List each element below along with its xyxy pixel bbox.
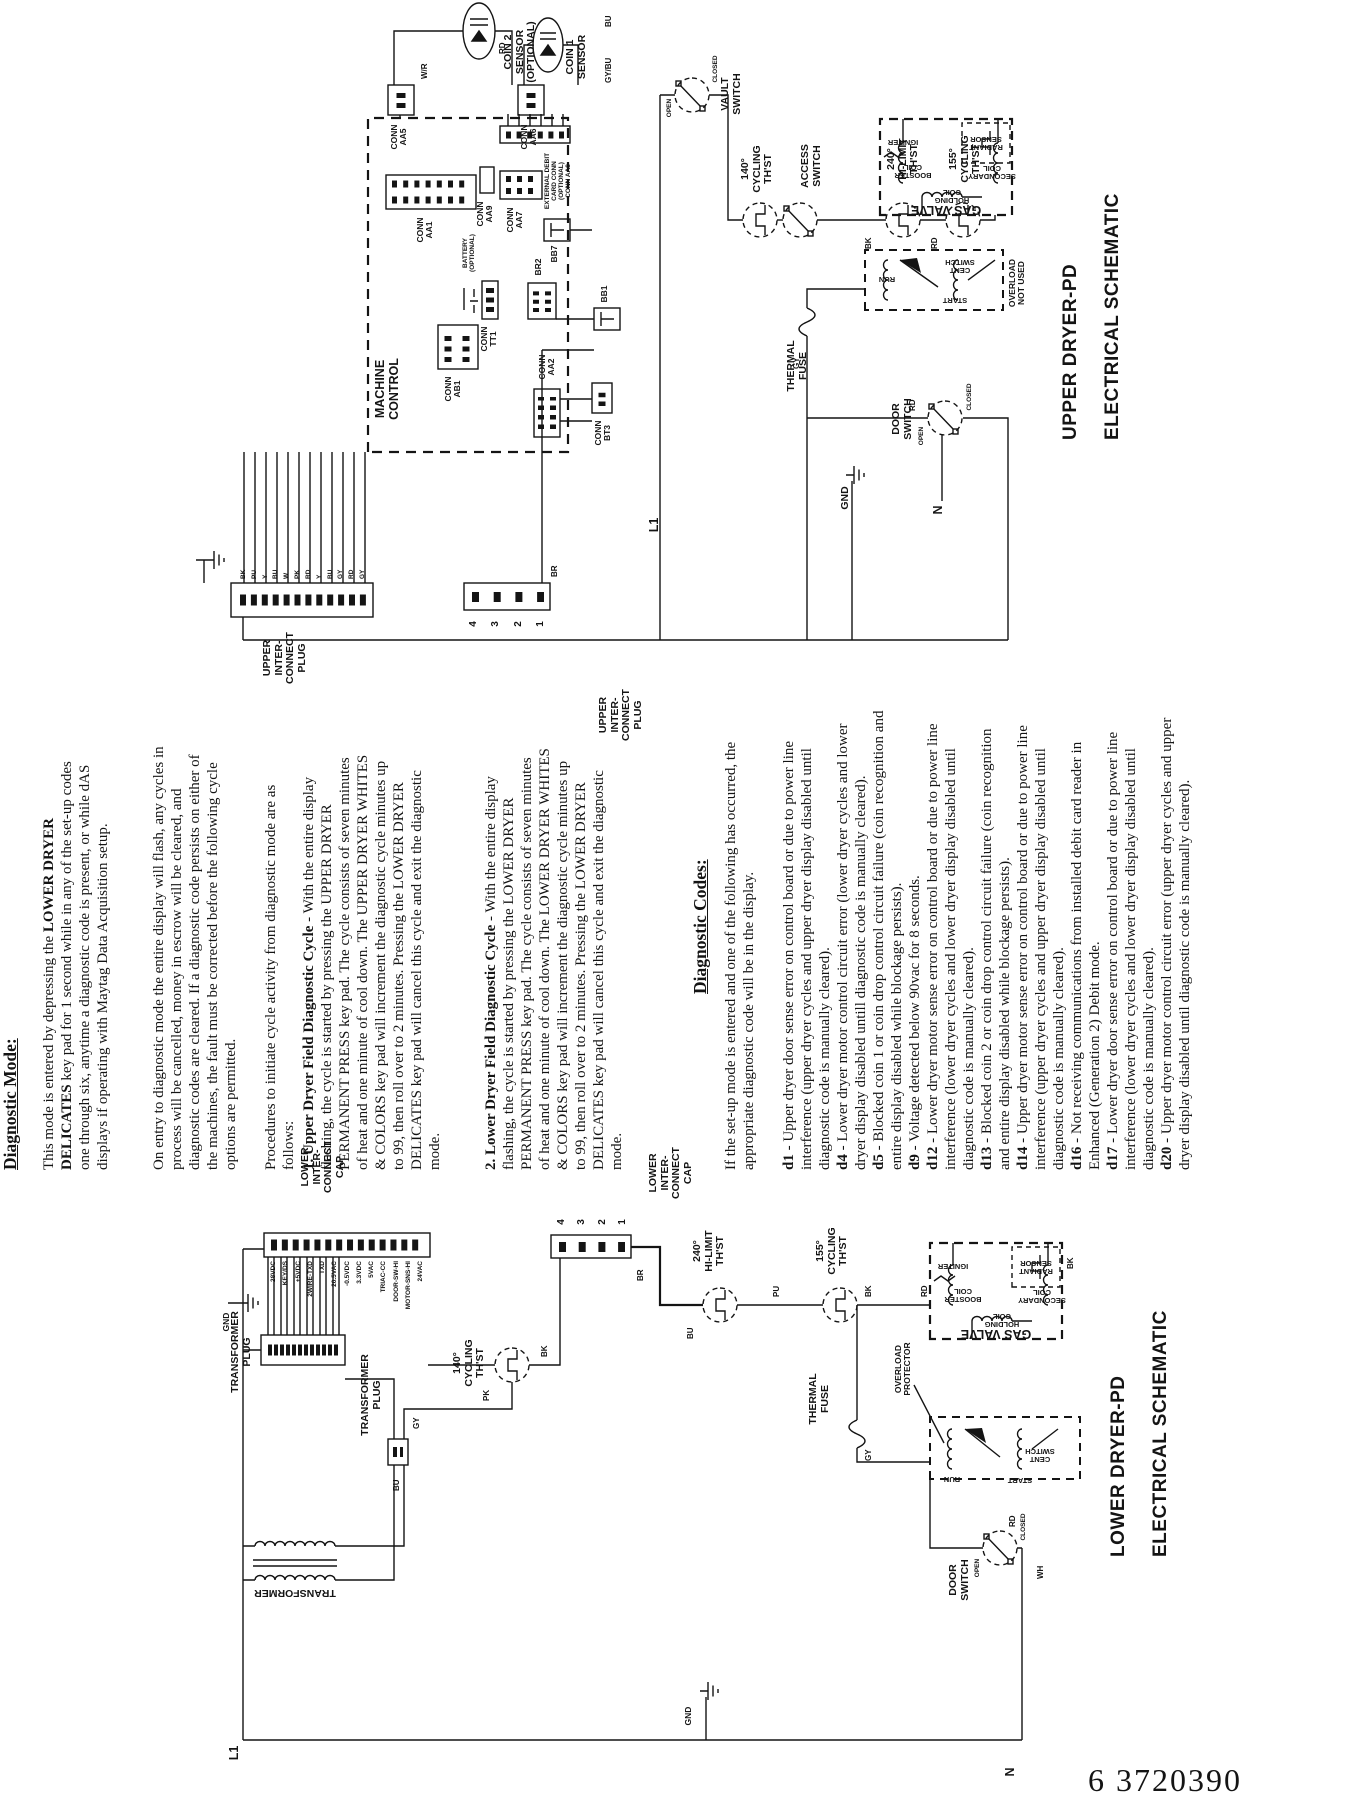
list-item: 3 (490, 621, 501, 627)
access-switch-label: ACCESS SWITCH (800, 135, 823, 197)
list-item: PK (294, 570, 301, 579)
open-label: OPEN (666, 93, 673, 123)
conn-aa9-label: CONN AA9 (476, 195, 495, 233)
wire-label: W/R (420, 63, 429, 79)
upper-interconnect-plug-label: UPPER INTER- CONNECT PLUG (262, 613, 308, 703)
list-item: 5VAC (368, 1261, 375, 1278)
list-item: 2WIRE-TXD (307, 1261, 314, 1297)
battery-label: BATTERY (OPTIONAL) (462, 225, 476, 281)
vault-switch-symbol (675, 78, 709, 112)
step-lead: 2. Lower Dryer Field Diagnostic Cycle (483, 925, 499, 1170)
list-item: 20.5VAC (331, 1261, 338, 1287)
secondary-coil-label: SECONDARY COIL (1013, 1288, 1071, 1304)
cycling-140-thermostat-symbol (743, 203, 777, 237)
n-label: N (932, 501, 946, 519)
wire-label: GY (412, 1417, 421, 1429)
step-text: - With the entire display flashing, the … (483, 748, 625, 1170)
transformer-symbol (255, 1576, 335, 1581)
lower-interconnect-cap-label: LOWER INTER- CONNECT CAP (648, 1135, 694, 1211)
step-1-paragraph: 1. Upper Dryer Field Diagnostic Cycle - … (300, 746, 444, 1170)
l1-label: L1 (228, 1741, 242, 1765)
open-label: OPEN (974, 1553, 981, 1583)
list-item: 1 (535, 621, 546, 627)
holding-coil-label: HOLDING COIL (977, 1312, 1027, 1328)
bb1-label: BB1 (600, 283, 609, 305)
wire-label: BK (540, 1345, 549, 1357)
code-id: d12 (925, 1147, 941, 1170)
closed-label: CLOSED (966, 377, 973, 417)
list-item: GY (337, 570, 344, 579)
title-line1: UPPER DRYER-PD (1061, 160, 1082, 440)
list-item: Y (262, 575, 269, 579)
list-item: GY (359, 570, 366, 579)
conn-bt3-label: CONN BT3 (594, 415, 613, 451)
list-item: BU (272, 570, 279, 579)
diagnostic-codes-intro: If the set-up mode is entered and one of… (722, 718, 758, 1170)
code-text: - Blocked coin 1 or coin drop control ci… (871, 711, 905, 1170)
transformer-plug-label: TRANSFORMER PLUG (360, 1350, 383, 1440)
wire-label: RD (930, 237, 939, 249)
plug4-pin-numbers: 4321 (468, 614, 546, 634)
closed-label: CLOSED (712, 49, 719, 89)
list-item: RD (348, 570, 355, 579)
coin2-sensor-label: COIN 2 SENSOR (OPTIONAL) (503, 9, 538, 95)
list-item: KEY/DS (282, 1261, 289, 1285)
conn-ab1-label: CONN AB1 (444, 371, 463, 407)
list-item: 2 (513, 621, 524, 627)
wire-label: GY/BU (604, 58, 613, 83)
list-item: BK (240, 570, 247, 579)
list-item: DOOR-SW-HI (393, 1261, 400, 1302)
code-entry: d9 - Voltage detected below 90vac for 8 … (906, 708, 924, 1170)
wire-label: PK (482, 1390, 491, 1401)
n-label: N (1004, 1763, 1018, 1781)
thermal-fuse-label: THERMAL FUSE (808, 1371, 831, 1427)
upper-schematic-title: UPPER DRYER-PD ELECTRICAL SCHEMATIC (1040, 160, 1144, 440)
code-id: d16 (1069, 1147, 1085, 1170)
gnd-label: GND (222, 1305, 231, 1339)
code-entry: d4 - Lower dryer motor control circuit e… (834, 708, 870, 1170)
scanned-tech-sheet: UPPER INTER- CONNECT PLUG UPPER INTER- C… (0, 0, 1347, 1809)
cycling-140-label: 140° CYCLING TH'ST (452, 1335, 487, 1391)
door-switch-label: DOOR SWITCH (891, 386, 914, 452)
wire-label: BR (636, 1269, 645, 1281)
list-item: MOTOR-SNS-HI (405, 1261, 412, 1309)
code-id: d5 (871, 1154, 887, 1170)
page-number: 6 3720390 (1088, 1762, 1242, 1799)
ground-symbol (206, 551, 224, 569)
procedures-paragraph: Procedures to initiate cycle activity fr… (262, 770, 298, 1170)
holding-coil-label: HOLDING COIL (927, 188, 977, 204)
code-entry: d5 - Blocked coin 1 or coin drop control… (870, 708, 906, 1170)
radiant-sensor-label: RADIANT SENSOR (961, 135, 1011, 151)
list-item: 24VAC (417, 1261, 424, 1281)
code-id: d20 (1159, 1147, 1175, 1170)
code-entry: d13 - Blocked coin 2 or coin drop contro… (978, 708, 1014, 1170)
conn-aa2-label: CONN AA2 (538, 349, 557, 385)
rotated-page: UPPER INTER- CONNECT PLUG UPPER INTER- C… (0, 0, 1347, 1809)
closed-label: CLOSED (1020, 1507, 1027, 1547)
list-item: 3.3VDC (356, 1261, 363, 1284)
igniter-symbol (934, 1276, 955, 1281)
step-lead: 1. Upper Dryer Field Diagnostic Cycle (301, 926, 317, 1170)
code-entry: d17 - Lower dryer door sense error on co… (1104, 708, 1158, 1170)
list-item: 2 (597, 1219, 608, 1225)
wire-label: RD (498, 42, 507, 54)
text-run: This mode is entered by depressing the (41, 932, 57, 1170)
conn-aa8-label: EXTERNAL DEBIT CARD CONN (OPTIONAL) CONN… (544, 145, 573, 217)
title-line2: ELECTRICAL SCHEMATIC (1151, 1277, 1172, 1557)
code-text: - Lower dryer door sense error on contro… (1105, 732, 1157, 1170)
code-entry: d14 - Upper dryer motor sense error on c… (1014, 708, 1068, 1170)
code-text: - Voltage detected below 90vac for 8 sec… (907, 875, 923, 1154)
machine-control-label: MACHINE CONTROL (374, 346, 402, 432)
transformer-plug-label: TRANSFORMER PLUG (230, 1304, 253, 1400)
wire-label: GY (792, 357, 801, 369)
cycling-140-label: 140° CYCLING TH'ST (740, 141, 775, 197)
code-id: d9 (907, 1154, 923, 1170)
code-text: - Blocked coin 2 or coin drop control ci… (979, 728, 1013, 1170)
wire-label: BU (686, 1327, 695, 1339)
booster-coil-label: BOOSTER COIL (938, 1287, 988, 1303)
door-switch-symbol (928, 401, 962, 435)
door-switch-symbol (983, 1531, 1017, 1565)
cycling-155-label: 155° CYCLING TH'ST (815, 1221, 850, 1281)
wire-label: BK (864, 1285, 873, 1297)
hilimit-240-thermostat-symbol (703, 1288, 737, 1322)
secondary-coil-label: SECONDARY COIL (963, 164, 1021, 180)
igniter-label: IGNITER (881, 136, 925, 146)
run-winding-label: RUN (937, 1473, 967, 1483)
wire-label: PU (772, 1286, 781, 1297)
code-text: - Not receiving communications from inst… (1069, 742, 1103, 1170)
wire-label: GY (864, 1449, 873, 1461)
wire-label: BU (392, 1479, 401, 1491)
igniter-label: IGNITER (931, 1260, 975, 1270)
conn-aa6-label: CONN AA6 (520, 117, 539, 157)
code-entry: d1 - Upper dryer door sense error on con… (780, 708, 834, 1170)
list-item: 1 (617, 1219, 628, 1225)
code-id: d14 (1015, 1147, 1031, 1170)
list-item: RD (305, 570, 312, 579)
conn-aa7-label: CONN AA7 (506, 201, 525, 239)
cap4-pin-numbers: 4321 (556, 1213, 628, 1231)
start-winding-label: START (1002, 1474, 1038, 1484)
plug12-wire-tags: BKPUYBUWPKRDYBUGYRDGY (240, 551, 366, 579)
ground-symbol (700, 1682, 718, 1700)
wire-label: RD (1008, 1515, 1017, 1527)
wire-label: RD (920, 1285, 929, 1297)
code-id: d17 (1105, 1147, 1121, 1170)
door-switch-label: DOOR SWITCH (948, 1547, 971, 1613)
diagnostic-mode-heading: Diagnostic Mode: (0, 1038, 21, 1170)
title-line1: LOWER DRYER-PD (1109, 1277, 1130, 1557)
list-item: TXD (319, 1261, 326, 1274)
code-entry: d12 - Lower dryer motor sense error on c… (924, 708, 978, 1170)
wire-label: BU (604, 15, 613, 27)
diagnostic-mode-paragraph-2: On entry to diagnostic mode the entire d… (150, 746, 240, 1170)
start-winding-label: START (937, 294, 973, 304)
cent-switch-label: CENT SWITCH (1018, 1445, 1062, 1463)
conn-aa5-label: CONN AA5 (390, 117, 409, 157)
code-id: d4 (835, 1154, 851, 1170)
code-id: d1 (781, 1154, 797, 1170)
hilimit-240-label: 240° HI-LIMIT TH'ST (692, 1221, 727, 1281)
code-text: - Upper dryer door sense error on contro… (781, 741, 833, 1170)
step-text: - With the entire display flashing, the … (301, 755, 443, 1170)
list-item: W (283, 573, 290, 579)
code-text: - Lower dryer motor control circuit erro… (835, 724, 869, 1171)
wire-label: WH (1036, 1566, 1045, 1579)
bb7-label: BB7 (550, 243, 559, 265)
run-winding-label: RUN (872, 273, 902, 283)
wire-label: BK (1066, 1257, 1075, 1269)
list-item: +5VDC (295, 1261, 302, 1282)
wire-label: RD (908, 399, 917, 411)
lower-schematic-title: LOWER DRYER-PD ELECTRICAL SCHEMATIC (1088, 1277, 1192, 1557)
br2-label: BR2 (534, 253, 543, 281)
cycling-140-thermostat-symbol (495, 1348, 529, 1382)
list-item: 28VDC (270, 1261, 277, 1282)
step-2-paragraph: 2. Lower Dryer Field Diagnostic Cycle - … (482, 746, 626, 1170)
list-item: PU (251, 570, 258, 579)
l1-label: L1 (648, 513, 662, 537)
upper-schematic (196, 3, 1012, 640)
cap15-signal-tags: 28VDCKEY/DS+5VDC2WIRE-TXDTXD20.5VAC-0.5V… (270, 1261, 424, 1357)
list-item: 3 (576, 1219, 587, 1225)
open-label: OPEN (918, 421, 925, 451)
access-switch-symbol (783, 203, 817, 237)
list-item: 4 (468, 621, 479, 627)
diagnostic-codes-list: d1 - Upper dryer door sense error on con… (780, 708, 1194, 1170)
wire-label: BK (864, 237, 873, 249)
diagnostic-mode-paragraph-1: This mode is entered by depressing the L… (40, 746, 112, 1170)
booster-coil-label: BOOSTER COIL (888, 163, 938, 179)
radiant-sensor-label: RADIANT SENSOR (1011, 1259, 1061, 1275)
code-entry: d16 - Not receiving communications from … (1068, 708, 1104, 1170)
code-id: d13 (979, 1147, 995, 1170)
code-text: - Lower dryer motor sense error on contr… (925, 723, 977, 1170)
title-line2: ELECTRICAL SCHEMATIC (1103, 160, 1124, 440)
diagnostic-codes-heading: Diagnostic Codes: (690, 859, 711, 994)
list-item: BU (327, 570, 334, 579)
code-entry: d20 - Upper dryer motor control circuit … (1158, 708, 1194, 1170)
code-text: - Upper dryer motor sense error on contr… (1015, 725, 1067, 1170)
overload-label: OVERLOAD PROTECTOR (894, 1327, 913, 1411)
cent-switch-label: CENT SWITCH (938, 256, 982, 274)
cycling-155-thermostat-symbol (823, 1288, 857, 1322)
conn-tt1-label: CONN TT1 (480, 321, 499, 357)
overload-label: OVERLOAD NOT USED (1008, 243, 1027, 323)
vault-switch-label: VAULT SWITCH (720, 63, 743, 125)
gnd-label: GND (684, 1699, 693, 1733)
conn-aa1-label: CONN AA1 (416, 211, 435, 249)
list-item: Y (316, 575, 323, 579)
wire-label: BR (550, 565, 559, 577)
list-item: TRIAC-CC (380, 1261, 387, 1292)
code-text: - Upper dryer motor control circuit erro… (1159, 718, 1193, 1170)
gnd-label: GND (840, 481, 852, 515)
transformer-label: TRANSFORMER (245, 1584, 345, 1598)
coin1-sensor-label: COIN 1 SENSOR (565, 17, 588, 97)
list-item: 4 (556, 1219, 567, 1225)
list-item: -0.5VDC (344, 1261, 351, 1286)
